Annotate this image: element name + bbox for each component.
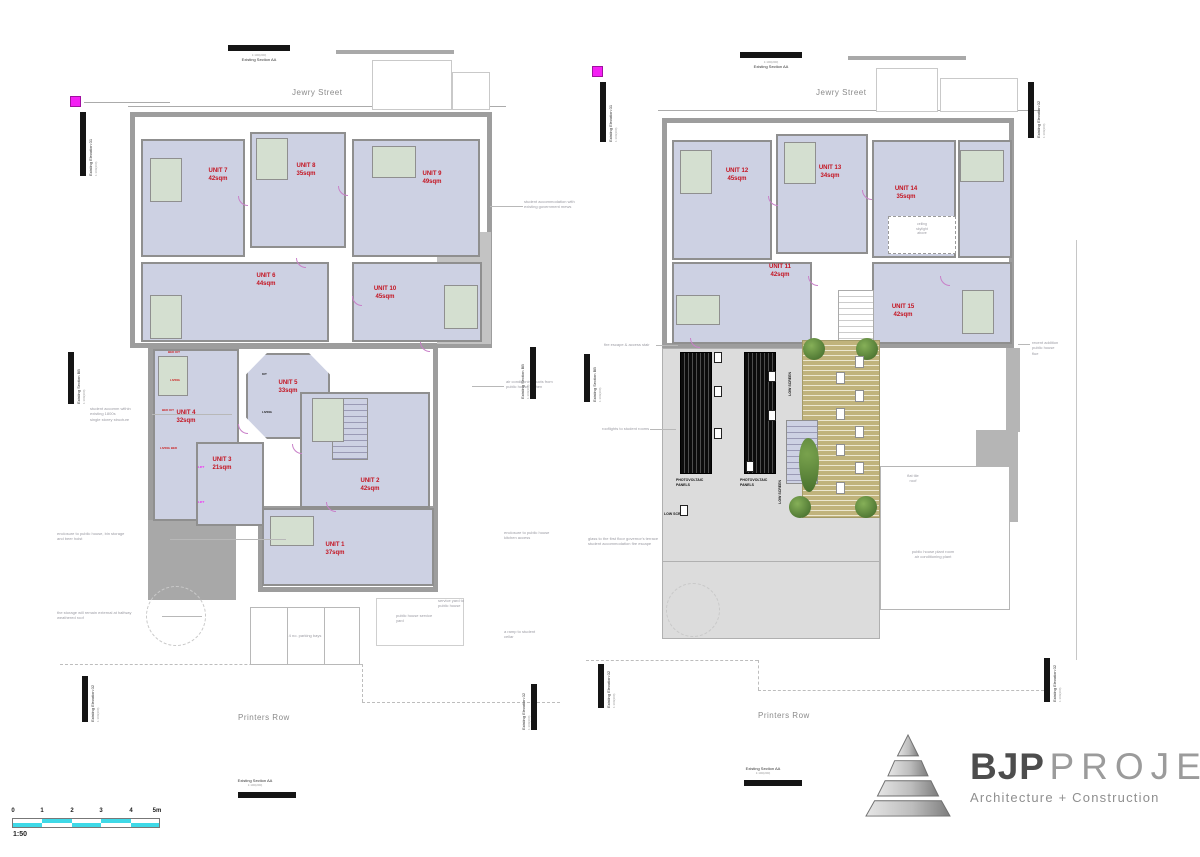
rooftop-equipment-box	[714, 386, 722, 397]
section-line-grey	[336, 50, 454, 54]
unit-3-label: UNIT 321sqm	[212, 457, 231, 473]
roof-outline	[940, 78, 1018, 112]
scale-tick: 5m	[153, 808, 162, 814]
elevation-02-marker: Existing Elevation 021:100(200)	[606, 664, 616, 708]
annotation: enclosure to public housekitchen access	[504, 530, 564, 541]
roof-outline	[372, 60, 452, 110]
pv-label-1: PHOTOVOLTAICPANELS	[676, 478, 720, 487]
lounger-icon	[855, 462, 864, 474]
bed	[150, 295, 182, 339]
street-label-printers-2: Printers Row	[758, 711, 810, 720]
unit-10-label: UNIT 1045sqm	[374, 286, 396, 302]
skylight-note-box: ceilingskylightabove	[888, 216, 956, 254]
unit-4-label: UNIT 432sqm	[176, 410, 195, 426]
street-label-jewry-2: Jewry Street	[816, 88, 866, 97]
room-label-magenta: LIFT	[198, 465, 204, 469]
annotation: air conditioning ducts frompublic house …	[506, 379, 572, 390]
elevation-02-marker: Existing Elevation 021:100(200)	[90, 676, 100, 722]
road-dashed-line	[758, 690, 1044, 691]
section-aa-bar	[744, 780, 802, 786]
room-label-magenta: LIFT	[198, 500, 204, 504]
roof-outline	[452, 72, 490, 110]
scale-tick: 4	[129, 808, 132, 814]
lounger-icon	[855, 356, 864, 368]
unit-12-label: UNIT 1245sqm	[726, 168, 748, 184]
elevation-01-marker: Existing Elevation 011:100(200)	[88, 112, 98, 176]
photovoltaic-array-1	[680, 352, 712, 474]
unit-9-label: UNIT 949sqm	[422, 171, 441, 187]
elevation-marker-square	[592, 66, 603, 77]
road-dashed-line	[758, 660, 759, 690]
section-aa-marker: Existing Section AA1:100(200)	[208, 778, 302, 787]
section-bb-marker: Existing Section BB1:100(200)	[520, 347, 530, 399]
section-bb-marker: Existing Section BB1:100(200)	[76, 352, 86, 404]
scale-tick: 2	[70, 808, 73, 814]
bed	[444, 285, 478, 329]
leader-line	[472, 386, 504, 387]
scale-tick: 1	[40, 808, 43, 814]
annotation: a ramp to studentcellar	[504, 629, 560, 640]
leader-line	[162, 616, 202, 617]
rooftop-equipment-box	[768, 371, 776, 382]
leader-line	[656, 345, 678, 346]
lounger-icon	[836, 444, 845, 456]
annotation: flat tileroof	[893, 473, 933, 484]
bed	[256, 138, 288, 180]
bed	[960, 150, 1004, 182]
elevation-02-bar	[1028, 82, 1034, 138]
elevation-01-bar	[600, 82, 606, 142]
tree-icon	[789, 496, 811, 518]
annotation: public house plant roomair conditioning …	[890, 549, 976, 560]
bed	[270, 516, 314, 546]
lounger-icon	[836, 372, 845, 384]
logo-bjp: BJP	[970, 746, 1045, 787]
unit-1-label: UNIT 137sqm	[325, 542, 344, 558]
bed	[784, 142, 816, 184]
leader-line	[1018, 344, 1030, 345]
road-dashed-line	[362, 664, 363, 702]
annotation-parking: 4 no. parking bays	[252, 633, 358, 638]
drawing-sheet: Jewry Street Jewry Street Printers Row P…	[0, 0, 1200, 857]
unit-2-label: UNIT 242sqm	[360, 478, 379, 494]
rooftop-equipment-box	[768, 410, 776, 421]
roof-outline	[876, 68, 938, 112]
annotation: service yard topublic house	[438, 598, 482, 609]
elevation-02-marker: Existing Elevation 021:100(200)	[521, 684, 531, 730]
lounger-icon	[855, 426, 864, 438]
bed	[312, 398, 344, 442]
bed	[962, 290, 994, 334]
scale-frame	[12, 818, 160, 828]
bed	[680, 150, 712, 194]
unit-6-label: UNIT 644sqm	[256, 273, 275, 289]
lounger-icon	[836, 408, 845, 420]
road-edge-line	[1076, 240, 1077, 660]
elevation-02-bar	[531, 684, 537, 730]
room-label: LIVING	[262, 410, 272, 414]
tree-icon	[855, 496, 877, 518]
bed	[372, 146, 416, 178]
annotation: the storage will remain external at half…	[57, 610, 161, 621]
elevation-01-bar	[80, 112, 86, 176]
scale-tick: 0	[11, 808, 14, 814]
company-logo: BJP PROJECTS Architecture + Construction	[860, 733, 1200, 817]
bed	[150, 158, 182, 202]
plan2-wall-mass	[1006, 348, 1020, 432]
logo-subtitle: Architecture + Construction	[970, 790, 1200, 805]
unit-3-room	[196, 442, 264, 526]
low-screen-label-vertical: LOW SCREEN	[788, 372, 792, 396]
unit-8-label: UNIT 835sqm	[296, 163, 315, 179]
section-bb-marker: Existing Section BB1:100(200)	[592, 354, 602, 402]
unit-13-label: UNIT 1334sqm	[819, 165, 841, 181]
tree-icon	[803, 338, 825, 360]
plant-room-outline	[880, 466, 1010, 610]
low-screen-label-vertical: LOW SCREEN	[778, 480, 782, 504]
leader-line	[650, 429, 676, 430]
rooftop-equipment-box	[680, 505, 688, 516]
elevation-02-bar	[598, 664, 604, 708]
unit-14-label: UNIT 1435sqm	[895, 186, 917, 202]
annotation: student accommodation withexisting gover…	[524, 199, 596, 210]
rooftop-equipment-box	[746, 461, 754, 472]
section-bb-bar	[584, 354, 590, 402]
annotation: enclosure to public house, bin storagean…	[57, 531, 169, 542]
section-aa-marker: 1:100(200)Existing Section AA	[212, 53, 306, 62]
leader-line	[170, 539, 286, 540]
scale-ratio: 1:50	[13, 831, 27, 838]
unit-15-label: UNIT 1542sqm	[892, 304, 914, 320]
section-line-grey	[848, 56, 966, 60]
leader-line	[152, 414, 232, 415]
room-label: KIT	[262, 372, 267, 376]
street-label-jewry-1: Jewry Street	[292, 88, 342, 97]
elevation-02-marker: Existing Elevation 021:100(200)	[1036, 82, 1046, 138]
elevation-01-marker: Existing Elevation 011:100(200)	[608, 82, 618, 142]
elevation-marker-square	[70, 96, 81, 107]
lounger-icon	[836, 482, 845, 494]
lounger-icon	[855, 390, 864, 402]
section-aa-marker: 1:100(200)Existing Section AA	[724, 60, 818, 69]
annotation: glass to the first floor governor's terr…	[588, 536, 684, 547]
unit-11-label: UNIT 1142sqm	[769, 264, 791, 280]
elevation-02-bar	[1044, 658, 1050, 702]
unit-5-label: UNIT 533sqm	[278, 380, 297, 396]
bed	[158, 356, 188, 396]
annotation: recent additionpublic houseflue	[1032, 340, 1076, 356]
annotation: fire escape & access stair	[604, 342, 656, 347]
room-label: LIVING	[170, 378, 180, 382]
logo-projects: PROJECTS	[1049, 746, 1200, 787]
tree-outline-icon	[666, 583, 720, 637]
elevation-02-bar	[82, 676, 88, 722]
annotation: rooflights to student rooms	[602, 426, 650, 431]
logo-text: BJP PROJECTS Architecture + Construction	[970, 746, 1200, 805]
annotation: student accomm withinexisting 1800ssingl…	[90, 406, 150, 422]
section-aa-marker: Existing Section AA1:100(200)	[716, 766, 810, 775]
section-bb-bar	[68, 352, 74, 404]
annotation: public house serviceyard	[396, 613, 450, 624]
section-bb-bar	[530, 347, 536, 399]
elevation-02-marker: Existing Elevation 021:100(200)	[1052, 658, 1062, 702]
pyramid-logo-icon	[860, 733, 956, 817]
rooftop-equipment-box	[714, 352, 722, 363]
road-dashed-line	[586, 660, 758, 661]
leader-line	[490, 206, 523, 207]
rooftop-equipment-box	[714, 428, 722, 439]
street-label-printers-1: Printers Row	[238, 713, 290, 722]
room-label: BED KIT	[168, 350, 180, 354]
room-label: BED KIT	[162, 408, 174, 412]
room-label: LIVING BED	[160, 446, 177, 450]
bed	[676, 295, 720, 325]
section-aa-bar	[238, 792, 296, 798]
unit-7-label: UNIT 742sqm	[208, 168, 227, 184]
scale-tick: 3	[99, 808, 102, 814]
marker-line	[84, 102, 170, 103]
section-aa-bar	[740, 52, 802, 58]
section-aa-bar	[228, 45, 290, 51]
